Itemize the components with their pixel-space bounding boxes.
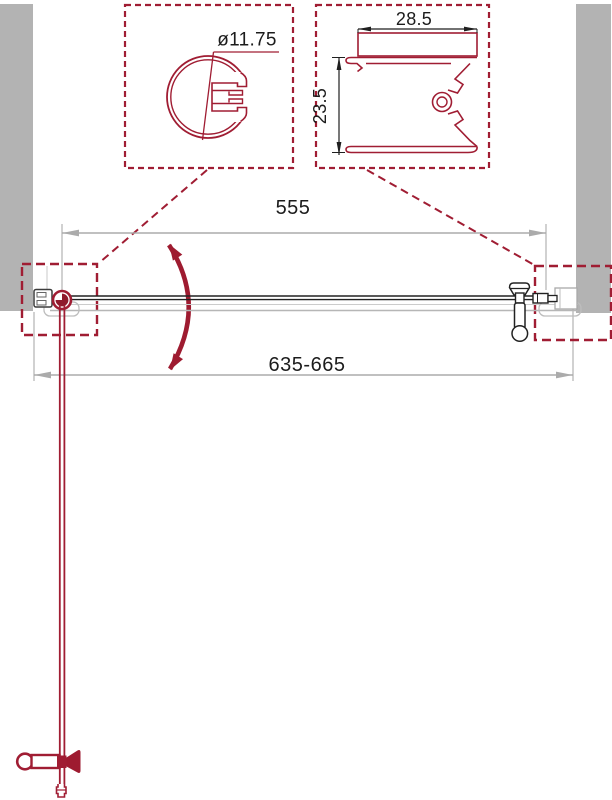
- profile-diameter-label: ø11.75: [217, 31, 277, 50]
- leader-line-right: [367, 170, 536, 266]
- circle-profile-section-icon: [167, 52, 279, 140]
- leader-line-left: [99, 170, 207, 263]
- door-swing-arc: [169, 244, 189, 370]
- door-width-label: 555: [276, 198, 311, 218]
- open-door-outline: [17, 305, 80, 797]
- door-bottom-profile-ghost: [44, 266, 581, 316]
- door-handle-icon: [510, 283, 530, 341]
- profile-depth-label: 23.5: [311, 88, 329, 124]
- dim-door-width: [62, 224, 546, 297]
- wall-profile-section-icon: [332, 27, 477, 155]
- shower-door-technical-drawing: 555 635-665 ø11.75 28.5 23.5: [0, 0, 612, 800]
- wall-profile-left: [34, 290, 52, 308]
- profile-width-label: 28.5: [396, 10, 432, 28]
- open-door-end-profile: [57, 784, 67, 797]
- detail-dim-depth: [332, 57, 345, 155]
- glass-door-panel: [66, 294, 557, 304]
- overall-width-label: 635-665: [269, 355, 346, 375]
- pivot-hinge-icon: [53, 291, 71, 309]
- open-door-handle-icon: [17, 750, 80, 773]
